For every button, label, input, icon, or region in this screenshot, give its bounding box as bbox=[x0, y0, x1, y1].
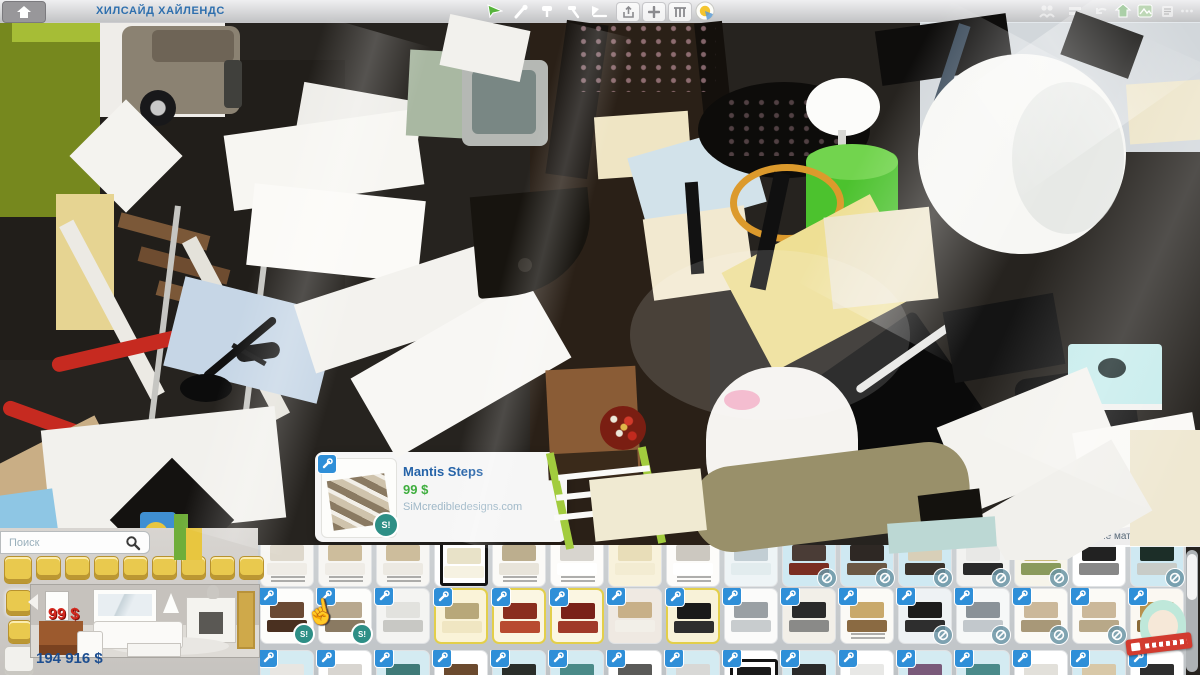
eyedropper-icon bbox=[514, 4, 529, 19]
move-lot-tool-button[interactable] bbox=[588, 2, 610, 20]
catalog-item-cream-panel[interactable] bbox=[608, 545, 662, 587]
catalog-item-metal-a-frame[interactable] bbox=[724, 588, 778, 644]
catalog-item-wood-side-table[interactable] bbox=[840, 588, 894, 644]
sledgehammer-icon bbox=[566, 4, 581, 19]
custom-content-wrench-icon bbox=[316, 650, 336, 668]
cream-table-bottom[interactable] bbox=[589, 468, 707, 541]
unavailable-badge bbox=[1165, 568, 1185, 587]
custom-content-wrench-icon bbox=[260, 588, 278, 606]
lot-name-label: ХИЛСАЙД ХАЙЛЕНДС bbox=[96, 0, 225, 22]
preview-fireplace bbox=[186, 597, 236, 643]
catalog-item-black-desk-frame[interactable] bbox=[782, 588, 836, 644]
category-plumbing[interactable] bbox=[65, 556, 90, 580]
custom-content-wrench-icon bbox=[549, 588, 569, 607]
simcredible-badge: S! bbox=[351, 623, 373, 645]
catalog-item-cabinet-frame[interactable] bbox=[782, 650, 836, 675]
household-icon[interactable] bbox=[1036, 2, 1058, 20]
custom-content-wrench-icon bbox=[260, 650, 278, 668]
white-cone-lamp[interactable] bbox=[806, 78, 880, 136]
preview-price-label: 99 $ bbox=[48, 606, 79, 624]
design-tool-button[interactable] bbox=[536, 2, 558, 20]
top-bar: ХИЛСАЙД ХАЙЛЕНДС bbox=[0, 0, 1200, 23]
item-art bbox=[440, 545, 488, 586]
search-icon[interactable] bbox=[125, 535, 141, 551]
home-button[interactable] bbox=[2, 1, 46, 23]
center-glow bbox=[630, 250, 910, 420]
custom-content-wrench-icon bbox=[374, 650, 394, 668]
selected-category-arrow bbox=[28, 594, 38, 610]
catalog-item-metal-diamond-frame[interactable] bbox=[1130, 545, 1184, 587]
catalog-item-black-trolley[interactable] bbox=[898, 588, 952, 644]
custom-content-wrench-icon bbox=[722, 588, 742, 606]
catalog-item-teal-bench[interactable] bbox=[550, 650, 604, 675]
catalog-item-two-door-cabinet[interactable] bbox=[1014, 588, 1068, 644]
hand-cursor-icon: ☝ bbox=[303, 595, 338, 630]
custom-content-wrench-icon bbox=[780, 588, 800, 606]
sledgehammer-tool-button[interactable] bbox=[562, 2, 584, 20]
catalog-item-scaffold-sketch[interactable] bbox=[434, 588, 488, 644]
category-beds[interactable] bbox=[94, 556, 119, 580]
custom-content-wrench-icon bbox=[490, 650, 510, 668]
unavailable-badge bbox=[875, 568, 895, 587]
pointer-icon bbox=[487, 4, 503, 18]
category-comfort[interactable] bbox=[8, 620, 32, 644]
catalog-item-hanging-lamp[interactable] bbox=[550, 545, 604, 587]
custom-content-wrench-icon bbox=[606, 588, 626, 606]
catalog-item-white-column-panel[interactable] bbox=[376, 588, 430, 644]
custom-content-wrench-icon bbox=[838, 588, 858, 606]
custom-content-wrench-icon bbox=[433, 588, 453, 607]
catalog-item-teal-cabinet[interactable] bbox=[956, 650, 1010, 675]
toybox-yellow-panel[interactable] bbox=[186, 528, 202, 560]
custom-content-wrench-icon bbox=[491, 588, 511, 607]
gray-tub-inner[interactable] bbox=[472, 70, 536, 134]
catalog-item-black-frame-shelf[interactable] bbox=[724, 650, 778, 675]
subscribe-banner bbox=[1125, 632, 1192, 656]
banner-text-strip bbox=[1145, 638, 1187, 648]
unavailable-badge bbox=[933, 568, 953, 587]
plus-cross-icon bbox=[648, 6, 660, 18]
catalog-item-logo-table-2[interactable] bbox=[666, 545, 720, 587]
custom-content-wrench-icon bbox=[664, 650, 684, 668]
catalog-item-framed-sketch[interactable] bbox=[434, 545, 488, 587]
unavailable-badge bbox=[1049, 625, 1069, 645]
search-input[interactable] bbox=[7, 536, 125, 550]
catalog-item-sideboard[interactable] bbox=[1072, 588, 1126, 644]
catalog-item-white-tile-table[interactable] bbox=[840, 650, 894, 675]
custom-content-wrench-icon bbox=[1012, 650, 1032, 668]
share-lot-button[interactable] bbox=[616, 2, 640, 22]
flower-bouquet[interactable] bbox=[600, 406, 646, 450]
custom-content-wrench-icon bbox=[432, 650, 452, 668]
catalog-item-white-platform[interactable] bbox=[260, 650, 314, 675]
item-price: 99 $ bbox=[403, 482, 428, 497]
catalog-item-red-bar-table[interactable] bbox=[550, 588, 604, 644]
sort-by-room[interactable] bbox=[4, 556, 32, 584]
catalog-item-white-desk[interactable] bbox=[1014, 650, 1068, 675]
preview-curtain-shelf bbox=[237, 591, 255, 649]
sims4-build-mode-screen: { "topbar": {"title": "ХИЛСАЙД ХАЙЛЕНДС"… bbox=[0, 0, 1200, 675]
category-decor[interactable] bbox=[210, 556, 235, 580]
catalog-item-black-column[interactable] bbox=[666, 588, 720, 644]
custom-content-wrench-icon bbox=[1070, 650, 1090, 668]
simcredible-badge: S! bbox=[373, 512, 399, 538]
green-cubby-shelf[interactable] bbox=[0, 22, 100, 217]
item-art bbox=[382, 545, 424, 580]
custom-content-wrench-icon bbox=[838, 650, 858, 668]
catalog-item-purple-box[interactable] bbox=[898, 650, 952, 675]
sun-icon bbox=[695, 1, 715, 21]
custom-content-wrench-icon bbox=[317, 454, 337, 474]
upload-box-icon bbox=[622, 6, 635, 18]
custom-content-wrench-icon bbox=[896, 588, 916, 606]
unavailable-badge bbox=[817, 568, 837, 587]
custom-content-wrench-icon bbox=[954, 588, 974, 606]
item-art bbox=[1078, 545, 1120, 580]
house-icon bbox=[17, 6, 31, 18]
custom-content-wrench-icon bbox=[606, 650, 626, 668]
catalog-item-dark-wardrobe[interactable] bbox=[840, 545, 894, 587]
custom-content-wrench-icon bbox=[374, 588, 394, 606]
day-night-toggle[interactable] bbox=[692, 2, 718, 20]
creator-logo bbox=[387, 576, 421, 582]
catalog-item-white-tray-table[interactable] bbox=[318, 650, 372, 675]
catalog-row-2: S!S! bbox=[260, 588, 1186, 649]
custom-content-wrench-icon bbox=[548, 650, 568, 668]
railing-icon bbox=[673, 6, 687, 18]
unavailable-badge bbox=[1107, 625, 1127, 645]
category-seating[interactable] bbox=[123, 556, 148, 580]
unavailable-badge bbox=[991, 568, 1011, 587]
catalog-item-balcony-shelf-1[interactable] bbox=[318, 545, 372, 587]
catalog-item-balcony-shelf-2[interactable] bbox=[376, 545, 430, 587]
expand-lot-button[interactable] bbox=[642, 2, 666, 22]
unavailable-badge bbox=[933, 625, 953, 645]
suv-roof[interactable] bbox=[152, 30, 234, 62]
catalog-grid: S!S! bbox=[258, 545, 1186, 675]
scrollbar-thumb[interactable] bbox=[1187, 554, 1197, 600]
paint-roller-icon bbox=[540, 4, 555, 19]
catalog-item-teal-side-table[interactable] bbox=[376, 650, 430, 675]
custom-content-wrench-icon bbox=[665, 588, 685, 607]
creator-logo bbox=[561, 576, 595, 582]
catalog-row-3 bbox=[260, 650, 1186, 675]
custom-content-wrench-icon bbox=[722, 650, 742, 668]
catalog-item-step-stool[interactable] bbox=[608, 588, 662, 644]
custom-content-wrench-icon bbox=[954, 650, 974, 668]
creator-logo bbox=[329, 576, 363, 582]
hand-tool-button[interactable] bbox=[484, 2, 506, 20]
item-art bbox=[614, 545, 656, 580]
preview-bust bbox=[207, 585, 219, 599]
item-art bbox=[556, 545, 598, 580]
suv-bumper[interactable] bbox=[224, 60, 242, 108]
unavailable-badge bbox=[1049, 568, 1069, 587]
item-art bbox=[672, 545, 714, 580]
catalog-item-dark-table-top[interactable] bbox=[492, 650, 546, 675]
catalog-item-mesh-table[interactable] bbox=[956, 588, 1010, 644]
catalog-item-dark-cabinet[interactable] bbox=[782, 545, 836, 587]
catalog-item-white-box-table[interactable] bbox=[666, 650, 720, 675]
unavailable-badge bbox=[991, 625, 1011, 645]
preview-tv bbox=[93, 589, 157, 625]
build-mode-viewport[interactable] bbox=[0, 0, 1200, 560]
green-shelf-top[interactable] bbox=[12, 22, 100, 42]
creator-logo bbox=[851, 633, 885, 639]
flag-arrow-icon bbox=[590, 4, 608, 18]
custom-content-wrench-icon bbox=[896, 650, 916, 668]
custom-content-wrench-icon bbox=[780, 650, 800, 668]
eyedropper-tool-button[interactable] bbox=[510, 2, 532, 20]
household-funds: 194 916 $ bbox=[36, 650, 103, 667]
creator-logo bbox=[271, 576, 305, 582]
creator-logo bbox=[677, 576, 711, 582]
custom-content-wrench-icon bbox=[1012, 588, 1032, 606]
railing-tool-button[interactable] bbox=[668, 2, 692, 22]
item-art bbox=[324, 545, 366, 580]
custom-content-wrench-icon bbox=[1070, 588, 1090, 606]
creator-watermark bbox=[1126, 598, 1200, 675]
creator-logo bbox=[503, 576, 537, 582]
catalog-item-round-stool[interactable] bbox=[608, 650, 662, 675]
play-logo-icon bbox=[1131, 642, 1141, 651]
category-appliances[interactable] bbox=[36, 556, 61, 580]
catalog-item-brown-table-top[interactable] bbox=[434, 650, 488, 675]
catalog-item-red-pedestal-table[interactable] bbox=[492, 588, 546, 644]
preview-coffee-table bbox=[127, 643, 181, 657]
search-bar[interactable] bbox=[0, 531, 150, 554]
catalog-item-beige-counter[interactable] bbox=[1072, 650, 1126, 675]
category-activities[interactable] bbox=[239, 556, 264, 580]
